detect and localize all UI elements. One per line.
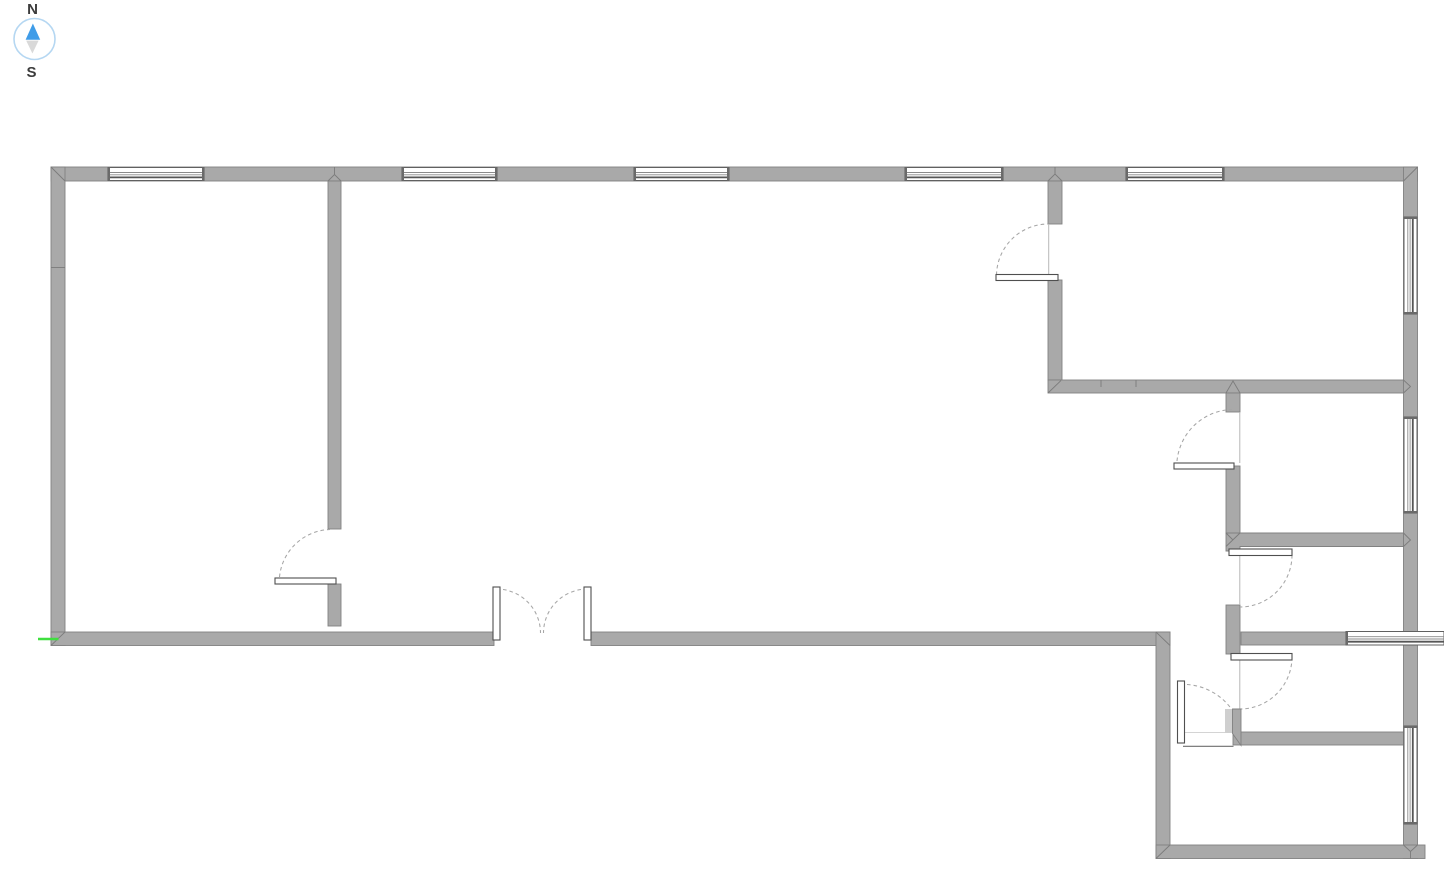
svg-text:S: S: [26, 64, 36, 81]
svg-text:N: N: [27, 1, 38, 18]
